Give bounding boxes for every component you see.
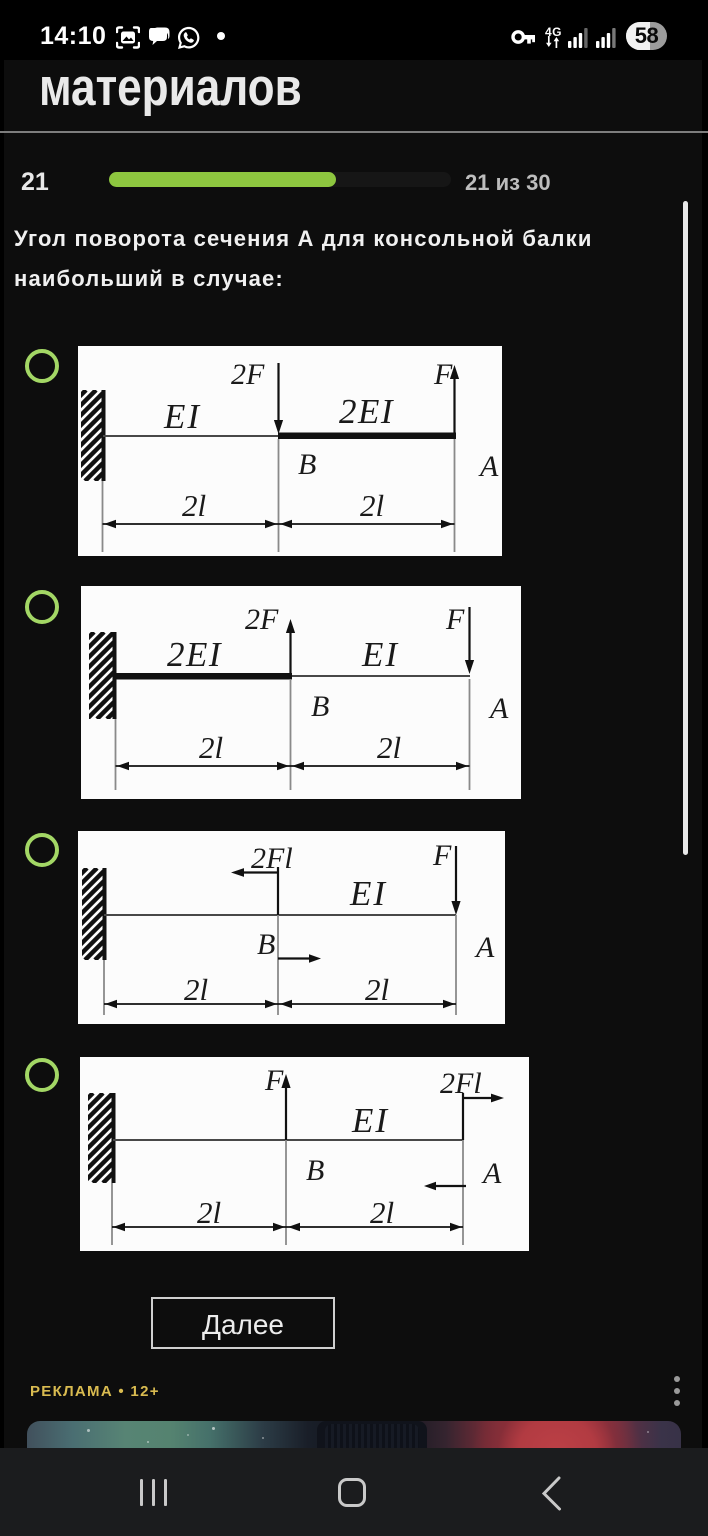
svg-text:EI: EI (163, 397, 201, 436)
svg-text:2l: 2l (377, 730, 401, 765)
svg-text:B: B (257, 928, 275, 961)
svg-text:2l: 2l (365, 972, 389, 1007)
svg-text:2Fl: 2Fl (251, 842, 293, 875)
svg-text:A: A (474, 931, 495, 964)
svg-text:F: F (432, 839, 452, 872)
svg-text:F: F (264, 1064, 284, 1097)
svg-text:F: F (445, 603, 465, 636)
svg-text:EI: EI (361, 635, 399, 674)
svg-text:2EI: 2EI (167, 635, 223, 674)
svg-text:EI: EI (351, 1101, 389, 1140)
svg-text:2l: 2l (360, 488, 384, 523)
svg-text:2l: 2l (184, 972, 208, 1007)
svg-text:2Fl: 2Fl (440, 1067, 482, 1100)
svg-text:B: B (298, 448, 316, 481)
svg-text:2l: 2l (199, 730, 223, 765)
svg-text:B: B (306, 1154, 324, 1187)
svg-text:2l: 2l (370, 1195, 394, 1230)
svg-text:2l: 2l (197, 1195, 221, 1230)
svg-text:2l: 2l (182, 488, 206, 523)
svg-text:A: A (481, 1157, 502, 1190)
svg-text:A: A (478, 450, 499, 483)
svg-text:2EI: 2EI (339, 392, 395, 431)
svg-text:A: A (488, 692, 509, 725)
svg-text:B: B (311, 690, 329, 723)
svg-text:2F: 2F (245, 603, 279, 636)
svg-text:EI: EI (349, 874, 387, 913)
svg-text:2F: 2F (231, 358, 265, 391)
svg-text:F: F (433, 358, 453, 391)
